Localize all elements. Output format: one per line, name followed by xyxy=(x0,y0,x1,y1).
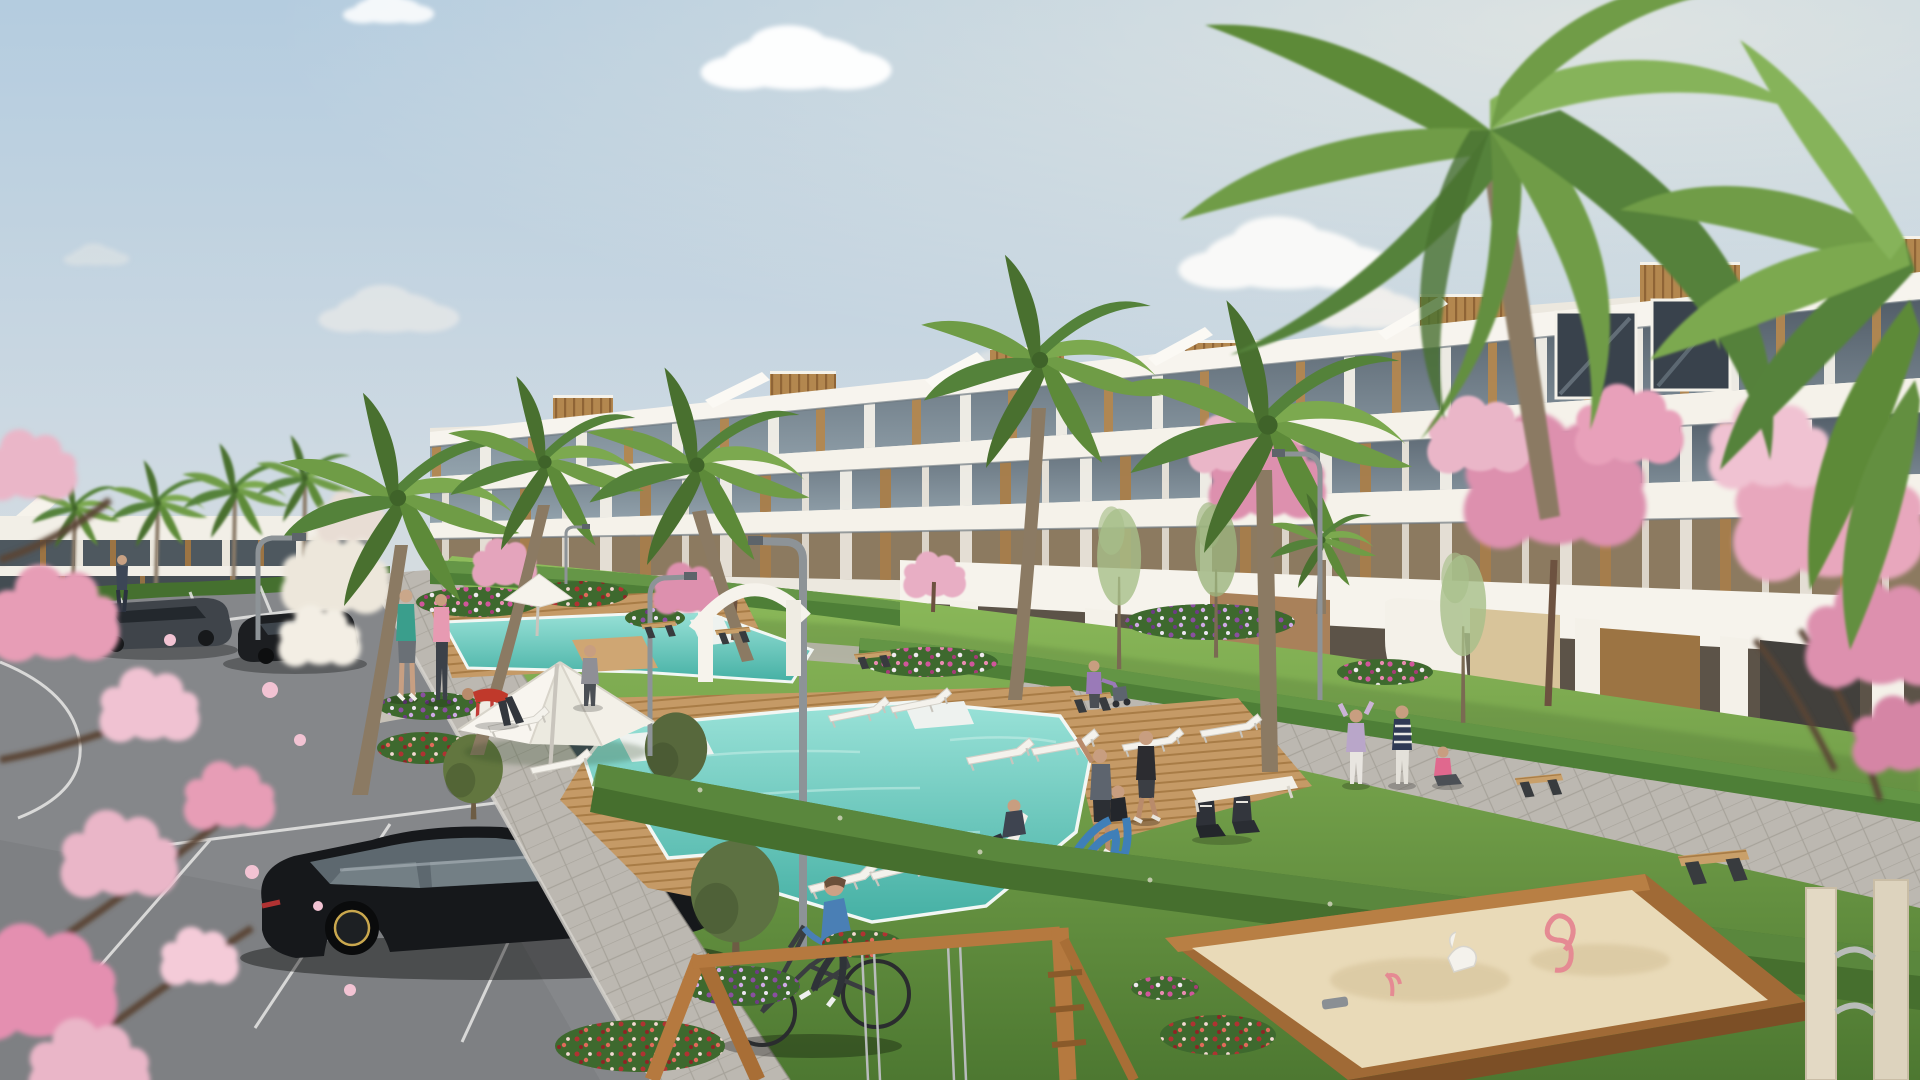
render-canvas: Sunny 3D architectural exterior render o… xyxy=(0,0,1920,1080)
render-image: Sunny 3D architectural exterior render o… xyxy=(0,0,1920,1080)
